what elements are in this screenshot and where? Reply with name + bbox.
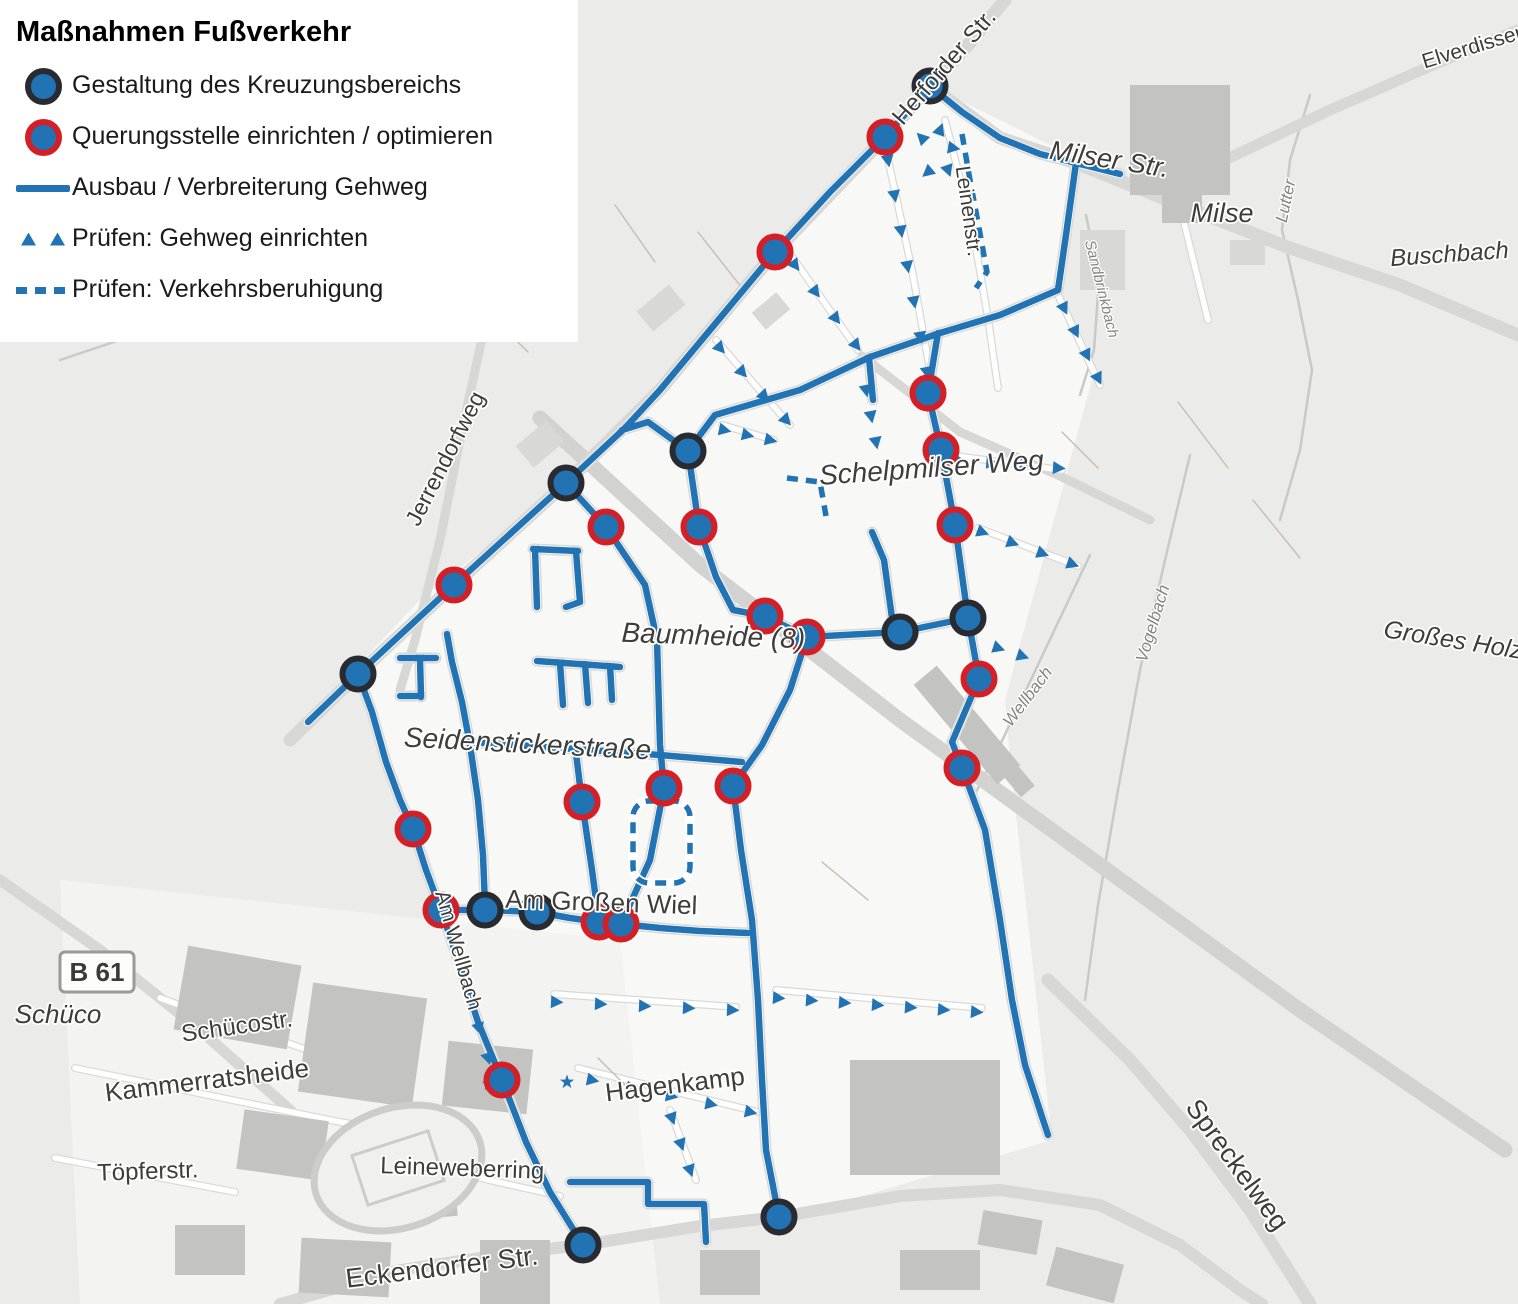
legend-item-pruefen-beruhigung: Prüfen: Verkehrsberuhigung [14,271,560,309]
map-label: Leineweberring [380,1152,545,1185]
querung-marker[interactable] [940,510,971,541]
route-kamm-10[interactable] [610,666,612,700]
map-label: Schüco [15,999,102,1029]
legend-item-label: Querungsstelle einrichten / optimieren [72,123,493,151]
route-kamm-4[interactable] [533,549,578,551]
legend-item-kreuzung: Gestaltung des Kreuzungsbereichs [14,67,560,105]
kreuzung-marker-icon [14,68,72,105]
querung-marker[interactable] [718,771,749,802]
querung-marker[interactable] [913,378,944,409]
route-kamm-5[interactable] [535,549,537,607]
building [850,1060,1000,1175]
kreuzung-marker[interactable] [551,468,582,499]
querung-marker[interactable] [439,570,470,601]
kreuzung-marker[interactable] [885,617,916,648]
map-label: Töpferstr. [97,1156,199,1187]
legend-title: Maßnahmen Fußverkehr [16,16,560,49]
legend-panel: Maßnahmen Fußverkehr Gestaltung des Kreu… [0,0,578,342]
querung-marker-icon [14,119,72,156]
kreuzung-marker[interactable] [568,1230,599,1261]
triangle-markers-icon [14,233,72,246]
legend-item-label: Gestaltung des Kreuzungsbereichs [72,72,461,100]
route-kamm-8[interactable] [560,663,563,705]
querung-marker[interactable] [398,814,429,845]
road-number-text: B 61 [70,957,125,987]
querung-marker[interactable] [487,1065,518,1096]
querung-marker[interactable] [591,512,622,543]
map-label: Milse [1190,198,1253,228]
dashed-line-icon [14,287,72,294]
building [298,983,427,1108]
querung-marker[interactable] [567,787,598,818]
kreuzung-marker[interactable] [764,1202,795,1233]
building [175,1225,245,1275]
legend-item-label: Prüfen: Gehweg einrichten [72,225,368,253]
building [900,1250,980,1290]
querung-marker[interactable] [684,512,715,543]
kreuzung-marker[interactable] [673,436,704,467]
route-kamm-2[interactable] [420,658,421,697]
querung-marker[interactable] [649,773,680,804]
map-stage: B 61Herforder Str.Milser Str.MilseLutter… [0,0,1518,1304]
kreuzung-marker[interactable] [343,659,374,690]
querung-marker[interactable] [964,664,995,695]
querung-marker[interactable] [947,753,978,784]
legend-item-pruefen-gehweg: Prüfen: Gehweg einrichten [14,220,560,258]
kreuzung-marker[interactable] [470,895,501,926]
solid-line-icon [14,185,72,192]
legend-item-ausbau: Ausbau / Verbreiterung Gehweg [14,169,560,207]
route-schelp-stich[interactable] [869,358,873,400]
legend-item-label: Ausbau / Verbreiterung Gehweg [72,174,428,202]
building [1230,240,1265,265]
legend-item-label: Prüfen: Verkehrsberuhigung [72,276,383,304]
map-label: Baumheide (8) [621,617,806,654]
legend-item-querung: Querungsstelle einrichten / optimieren [14,118,560,156]
querung-marker[interactable] [870,122,901,153]
kreuzung-marker[interactable] [953,603,984,634]
querung-marker[interactable] [760,237,791,268]
route-kamm-9[interactable] [585,664,588,703]
legend-items: Gestaltung des Kreuzungsbereichs Querung… [14,67,560,309]
building [700,1250,760,1295]
